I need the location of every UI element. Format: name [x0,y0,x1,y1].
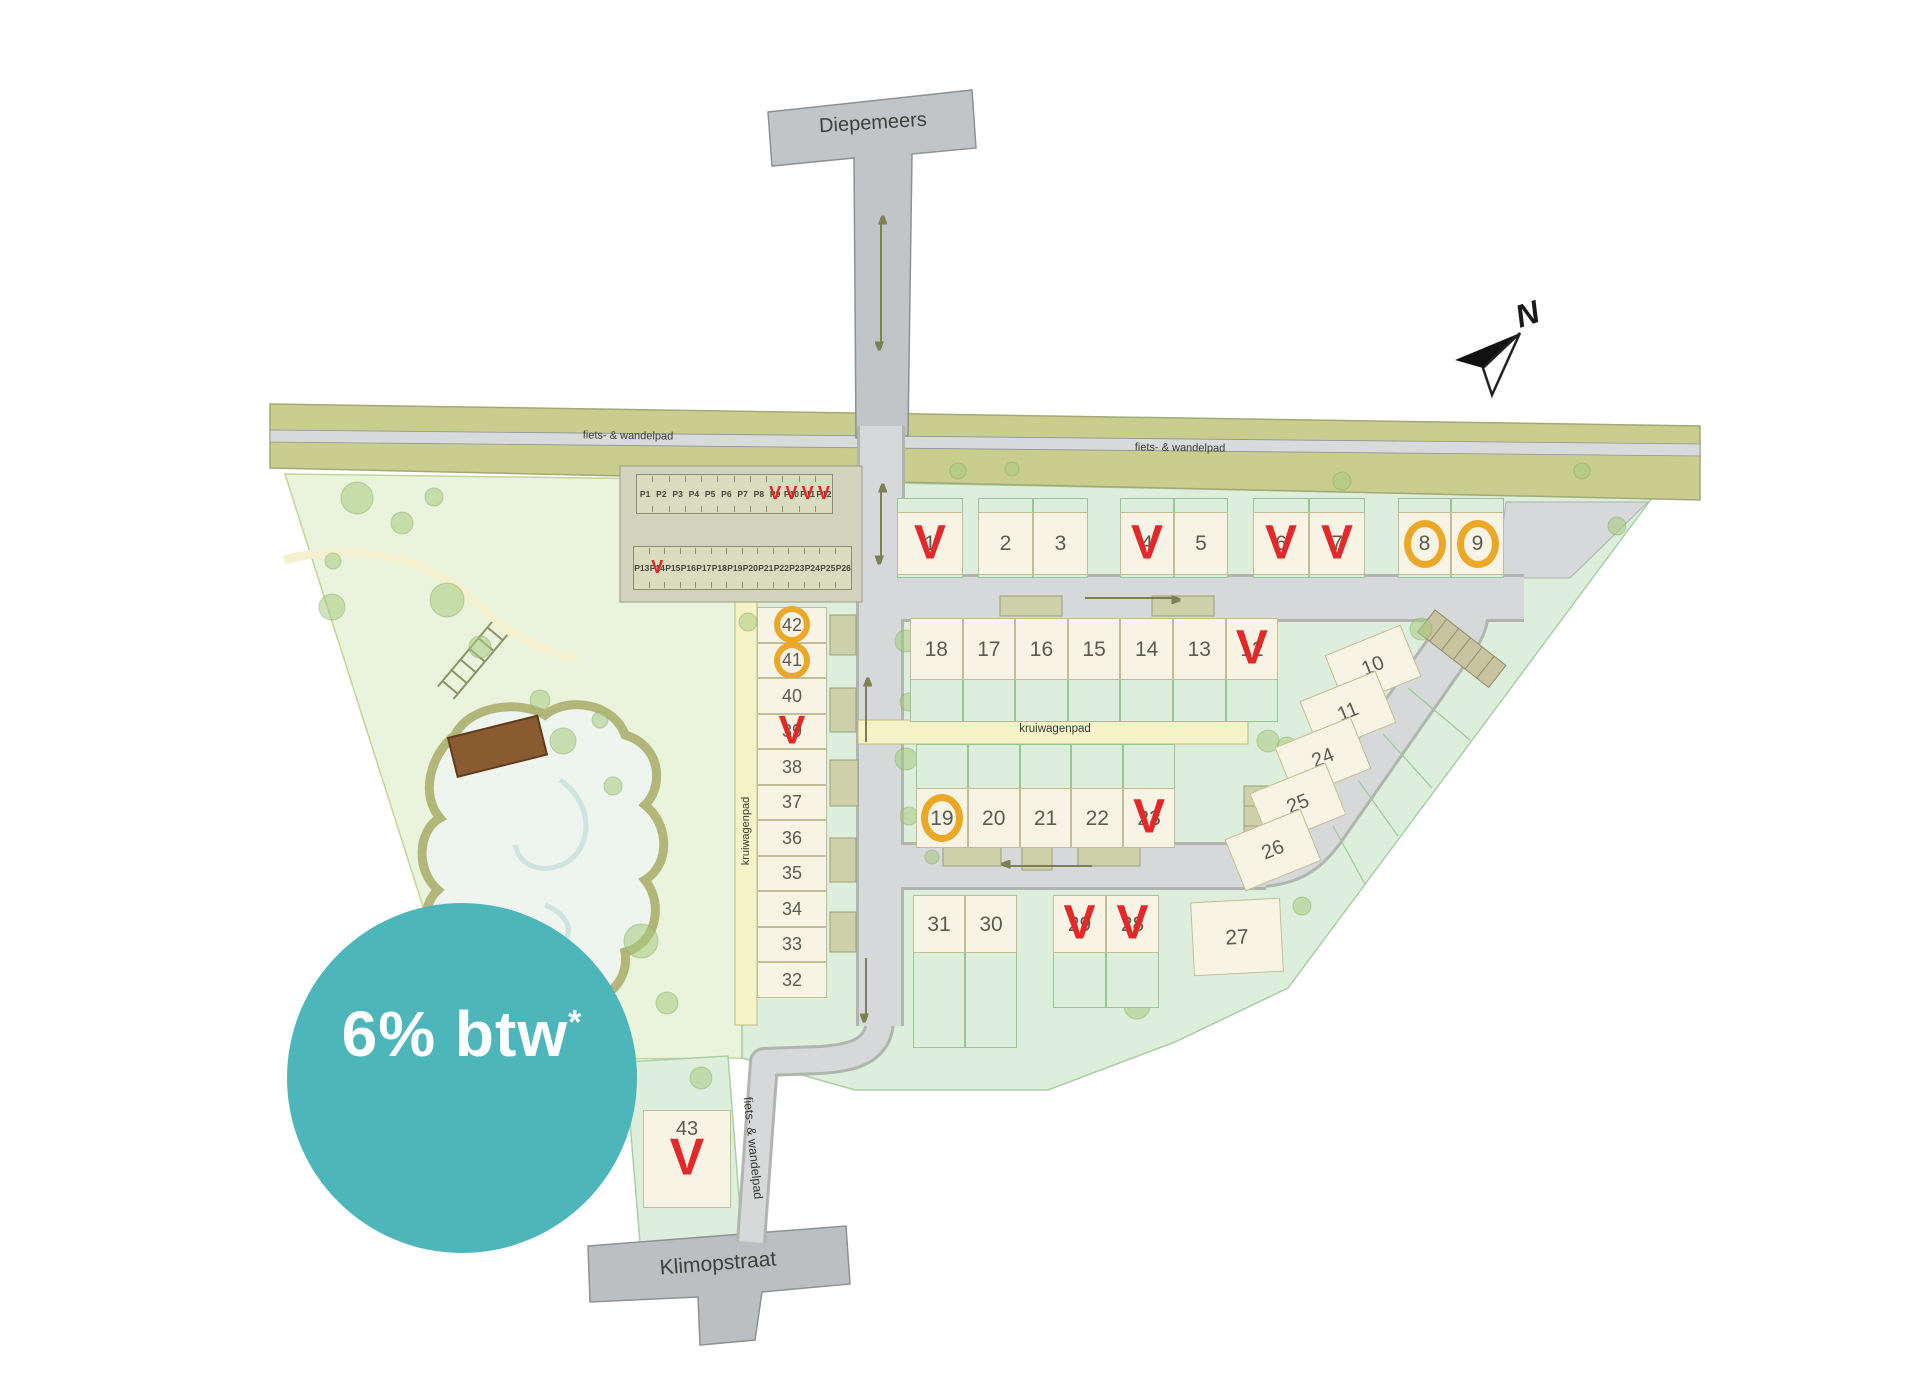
lot-5: 5 [1174,512,1228,575]
parking-stall-P22: P22 [774,547,790,589]
lot-8: 8 [1398,512,1451,575]
lot-number: 8 [1419,533,1431,554]
parking-stall-P5: P5 [702,475,718,513]
option-ring: 42 [774,606,810,643]
sold-mark: V [914,521,946,564]
parking-stall-label: P4 [689,489,699,499]
lot-number: 20 [982,808,1005,829]
lot-number: 40 [782,687,802,705]
parking-stall-label: P8 [754,489,764,499]
lot-number: 26 [1259,837,1287,864]
site-plan: 1V234V56V7V8918171615141312V1920212223V3… [0,0,1920,1400]
lot-43: 43V [643,1110,731,1208]
lot-number: 13 [1188,639,1211,660]
parking-stall-label: P17 [696,563,711,573]
lot-number: 32 [782,971,802,989]
parking-stall-label: P26 [836,563,851,573]
parking-stall-P10: P10V [783,475,799,513]
lot-number: 18 [925,639,948,660]
lot-38: 38 [757,749,827,785]
parking-stall-P14: P14V [650,547,666,589]
parking-stall-P23: P23 [789,547,805,589]
parking-stall-P25: P25 [820,547,836,589]
parking-stall-label: P15 [665,563,680,573]
lot-number: 15 [1082,639,1105,660]
parking-stall-P19: P19 [727,547,743,589]
parking-stall-P4: P4 [686,475,702,513]
lot-6: 6V [1253,512,1309,575]
option-ring: 9 [1457,520,1499,568]
parking-stall-P9: P9V [767,475,783,513]
parking-stall-P13: P13 [634,547,650,589]
parking-stall-label: P5 [705,489,715,499]
lot-number: 21 [1034,808,1057,829]
lot-28: 28V [1106,895,1159,953]
lot-16: 16 [1015,618,1068,680]
lot-number: 14 [1135,639,1158,660]
lot-9: 9 [1451,512,1504,575]
parking-stall-P2: P2 [653,475,669,513]
lot-number: 19 [930,808,953,829]
sold-mark: V [1063,902,1095,945]
lot-20: 20 [968,788,1020,848]
lot-21: 21 [1020,788,1072,848]
sold-mark: V [670,1135,705,1182]
lot-23: 23V [1123,788,1175,848]
lot-34: 34 [757,891,827,927]
parking-stall-label: P13 [634,563,649,573]
lot-number: 38 [782,758,802,776]
lot-19: 19 [916,788,968,848]
lot-13: 13 [1173,618,1226,680]
parking-stall-label: P7 [737,489,747,499]
sold-mark: V [769,485,781,501]
sold-mark: V [1321,521,1353,564]
parking-stall-label: P23 [789,563,804,573]
parking-stall-label: P24 [805,563,820,573]
parking-stall-label: P20 [743,563,758,573]
lot-number: 9 [1472,533,1484,554]
lot-32: 32 [757,962,827,998]
parking-stall-label: P1 [640,489,650,499]
option-ring: 19 [921,794,963,842]
lot-2: 2 [978,512,1033,575]
lot-number: 31 [927,914,950,935]
lot-3: 3 [1033,512,1088,575]
lot-35: 35 [757,856,827,892]
lot-number: 36 [782,829,802,847]
lot-36: 36 [757,820,827,856]
parking-stall-label: P21 [758,563,773,573]
lot-number: 22 [1086,808,1109,829]
parking-stall-label: P16 [681,563,696,573]
lot-number: 27 [1225,926,1249,948]
parking-stall-label: P22 [774,563,789,573]
option-ring: 41 [774,642,810,679]
lot-number: 16 [1030,639,1053,660]
parking-stall-label: P2 [656,489,666,499]
sold-mark: V [651,559,663,575]
sold-mark: V [1131,521,1163,564]
parking-stall-P12: P12V [816,475,832,513]
lot-17: 17 [963,618,1016,680]
vat-badge: 6% btw* [287,903,637,1253]
lot-number: 2 [1000,533,1012,554]
parking-stall-label: P3 [672,489,682,499]
sold-mark: V [802,485,814,501]
lot-number: 5 [1195,533,1207,554]
lot-42: 42 [757,607,827,643]
lot-number: 17 [977,639,1000,660]
parking-stall-P21: P21 [758,547,774,589]
parking-stall-P11: P11V [800,475,816,513]
parking-stall-P26: P26 [836,547,852,589]
parking-row-2: P13P14VP15P16P17P18P19P20P21P22P23P24P25… [633,546,852,590]
lot-18: 18 [910,618,963,680]
parking-stall-P1: P1 [637,475,653,513]
lot-31: 31 [913,895,965,953]
sold-mark: V [1265,521,1297,564]
lot-number: 42 [782,616,802,634]
sold-mark: V [779,713,806,749]
parking-stall-P8: P8 [751,475,767,513]
parking-stall-P3: P3 [670,475,686,513]
parking-stall-P20: P20 [743,547,759,589]
lot-29: 29V [1053,895,1106,953]
lot-number: 35 [782,864,802,882]
lot-39: 39V [757,714,827,750]
vat-badge-text: 6% btw [342,998,568,1070]
lot-37: 37 [757,785,827,821]
lot-41: 41 [757,643,827,679]
parking-stall-label: P25 [820,563,835,573]
parking-stall-label: P6 [721,489,731,499]
parking-stall-P7: P7 [735,475,751,513]
parking-stall-P24: P24 [805,547,821,589]
parking-stall-P18: P18 [712,547,728,589]
parking-stall-P16: P16 [681,547,697,589]
lot-27: 27 [1190,898,1284,977]
parking-row-1: P1P2P3P4P5P6P7P8P9VP10VP11VP12V [636,474,833,514]
lot-14: 14 [1120,618,1173,680]
sold-mark: V [785,485,797,501]
lot-7: 7V [1309,512,1365,575]
lot-33: 33 [757,927,827,963]
lot-22: 22 [1071,788,1123,848]
vat-badge-text-wrap: 6% btw* [342,997,583,1071]
lot-number: 30 [979,914,1002,935]
parking-stall-label: P18 [712,563,727,573]
parking-stall-P15: P15 [665,547,681,589]
vat-badge-asterisk: * [568,1004,582,1042]
lot-number: 37 [782,793,802,811]
lot-15: 15 [1068,618,1121,680]
sold-mark: V [818,485,830,501]
sold-mark: V [1116,902,1148,945]
option-ring: 8 [1404,520,1446,568]
lot-number: 34 [782,900,802,918]
parking-stall-P17: P17 [696,547,712,589]
parking-stall-P6: P6 [718,475,734,513]
lot-number: 3 [1055,533,1067,554]
lots-layer: 1V234V56V7V8918171615141312V1920212223V3… [0,0,1920,1400]
sold-mark: V [1236,627,1268,670]
sold-mark: V [1133,796,1165,839]
lot-1: 1V [897,512,963,575]
lot-number: 41 [782,651,802,669]
lot-number: 33 [782,935,802,953]
lot-4: 4V [1120,512,1174,575]
lot-12: 12V [1226,618,1279,680]
parking-stall-label: P19 [727,563,742,573]
lot-30: 30 [965,895,1017,953]
